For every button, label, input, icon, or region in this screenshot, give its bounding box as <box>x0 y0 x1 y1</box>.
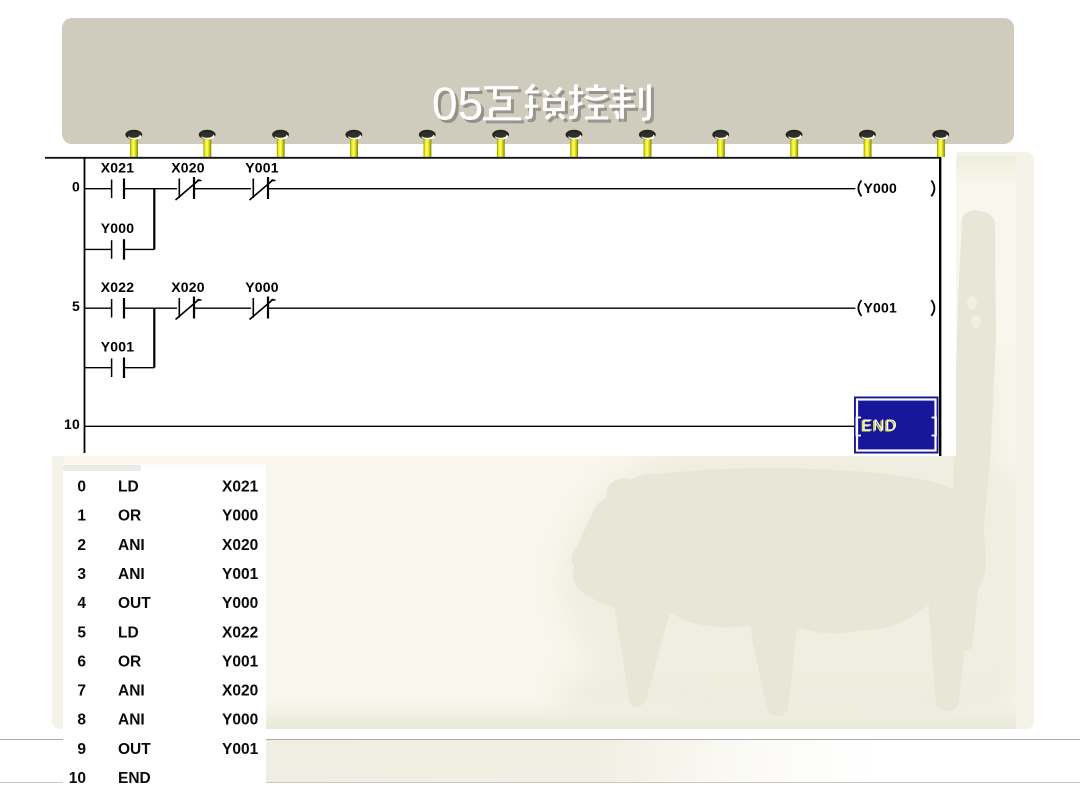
svg-text:0: 0 <box>77 479 86 496</box>
svg-text:10: 10 <box>64 416 80 432</box>
svg-text:Y000: Y000 <box>222 595 258 612</box>
svg-text:10: 10 <box>69 770 86 787</box>
svg-text:X020: X020 <box>222 537 258 554</box>
svg-text:Y001: Y001 <box>864 300 898 316</box>
svg-text:X020: X020 <box>171 160 205 176</box>
svg-text:ANI: ANI <box>118 683 145 700</box>
svg-text:OR: OR <box>118 653 141 670</box>
svg-text:LD: LD <box>118 624 139 641</box>
svg-text:ANI: ANI <box>118 537 145 554</box>
svg-text:Y000: Y000 <box>222 712 258 729</box>
svg-text:2: 2 <box>77 537 86 554</box>
svg-text:ANI: ANI <box>118 712 145 729</box>
svg-text:3: 3 <box>77 566 86 583</box>
svg-text:8: 8 <box>77 712 86 729</box>
svg-text:Y000: Y000 <box>864 180 898 196</box>
svg-text:LD: LD <box>118 479 139 496</box>
svg-text:ANI: ANI <box>118 566 145 583</box>
svg-text:Y000: Y000 <box>101 220 135 236</box>
svg-text:X021: X021 <box>101 160 135 176</box>
svg-text:9: 9 <box>77 741 86 758</box>
svg-text:X021: X021 <box>222 479 259 496</box>
svg-text:0: 0 <box>72 179 80 195</box>
svg-text:Y000: Y000 <box>222 508 258 525</box>
svg-text:OR: OR <box>118 508 141 525</box>
svg-text:Y001: Y001 <box>101 339 135 355</box>
svg-text:OUT: OUT <box>118 741 151 758</box>
svg-text:Y000: Y000 <box>245 279 279 295</box>
svg-text:Y001: Y001 <box>222 566 259 583</box>
svg-text:7: 7 <box>77 683 86 700</box>
svg-text:5: 5 <box>72 298 80 314</box>
svg-text:END: END <box>118 770 151 787</box>
svg-text:4: 4 <box>77 595 86 612</box>
svg-text:6: 6 <box>77 653 86 670</box>
svg-text:X020: X020 <box>222 683 258 700</box>
svg-text:OUT: OUT <box>118 595 151 612</box>
svg-text:Y001: Y001 <box>245 160 279 176</box>
svg-text:1: 1 <box>77 508 86 525</box>
svg-text:Y001: Y001 <box>222 653 259 670</box>
svg-text:Y001: Y001 <box>222 741 259 758</box>
svg-text:END: END <box>862 418 898 435</box>
svg-text:X020: X020 <box>171 279 205 295</box>
svg-text:5: 5 <box>77 624 86 641</box>
svg-text:X022: X022 <box>222 624 258 641</box>
svg-text:X022: X022 <box>101 279 135 295</box>
